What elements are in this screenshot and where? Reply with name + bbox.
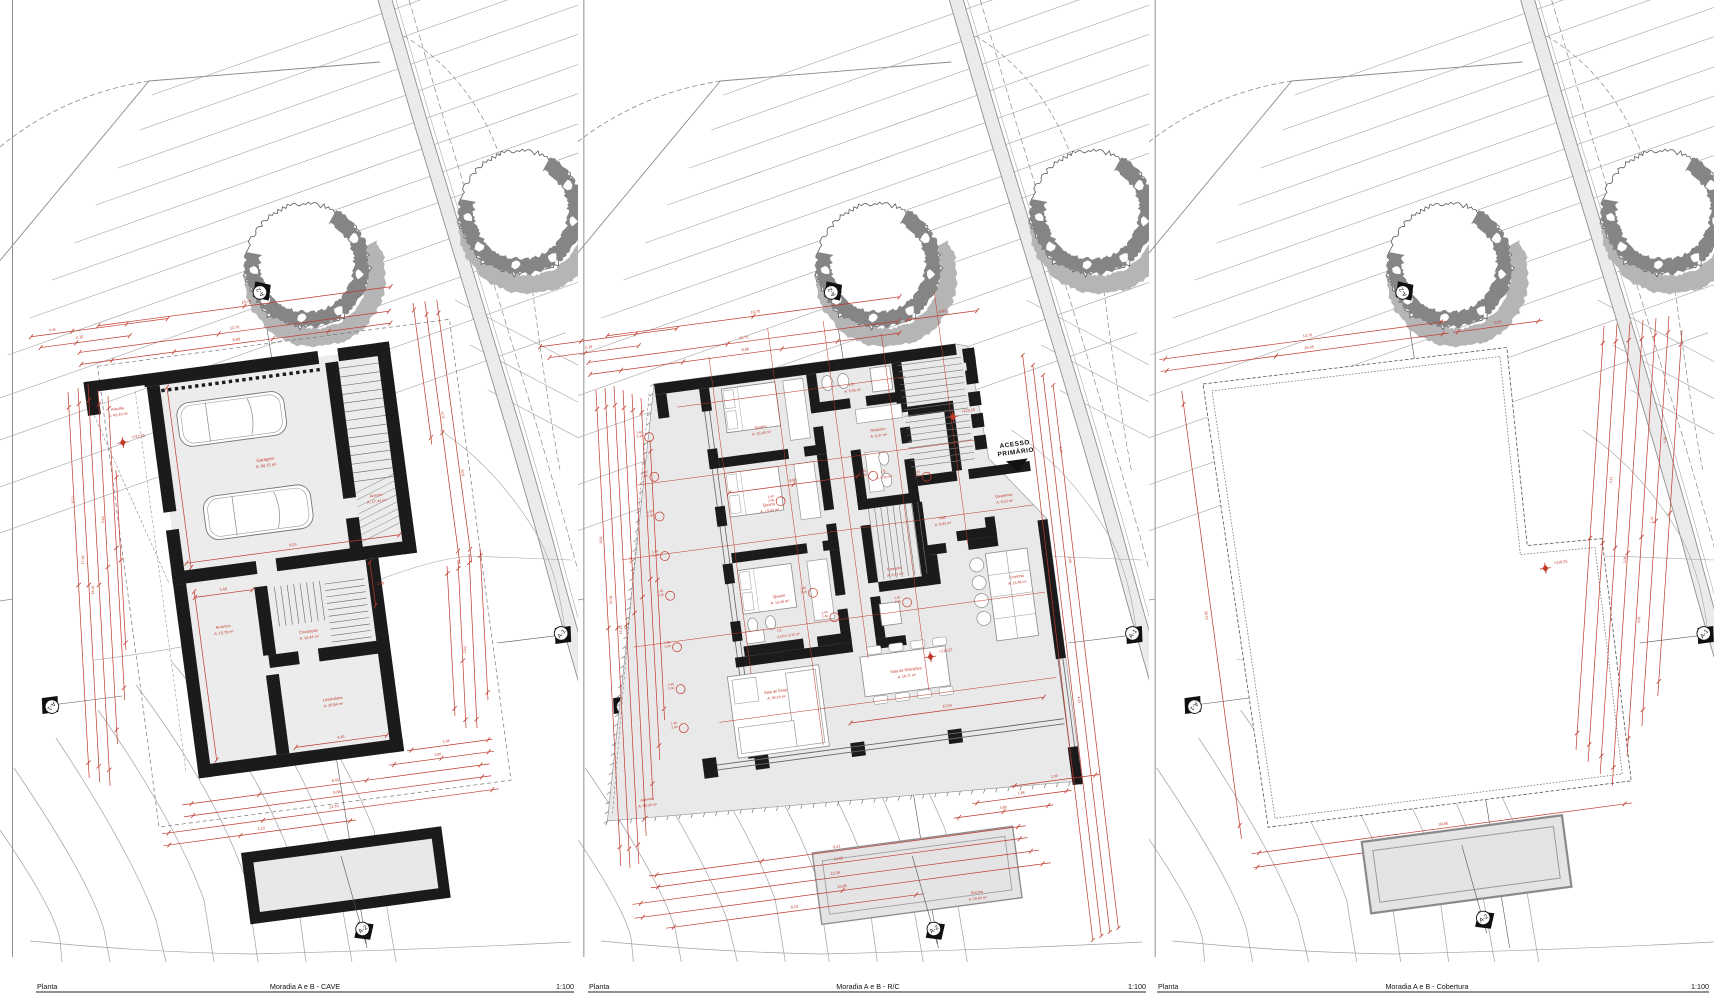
svg-text:2,40: 2,40 bbox=[860, 473, 867, 478]
svg-text:2,63: 2,63 bbox=[463, 646, 467, 653]
svg-text:2,40: 2,40 bbox=[636, 434, 643, 439]
svg-text:Moradia A e B - CAVE: Moradia A e B - CAVE bbox=[270, 982, 340, 991]
svg-text:24,05: 24,05 bbox=[609, 595, 613, 604]
svg-text:1,23: 1,23 bbox=[1650, 516, 1654, 523]
svg-text:Planta: Planta bbox=[37, 982, 57, 991]
svg-text:2,40: 2,40 bbox=[671, 725, 678, 730]
svg-text:2,40: 2,40 bbox=[647, 513, 654, 518]
svg-text:1:100: 1:100 bbox=[1691, 982, 1709, 991]
svg-text:8,72: 8,72 bbox=[71, 496, 75, 503]
svg-text:4,38: 4,38 bbox=[1663, 436, 1667, 443]
svg-text:6,96: 6,96 bbox=[629, 556, 633, 563]
svg-text:8,56: 8,56 bbox=[599, 536, 603, 543]
svg-text:I.S.: I.S. bbox=[777, 628, 783, 633]
svg-text:2,40: 2,40 bbox=[914, 474, 921, 479]
svg-text:2,40: 2,40 bbox=[664, 644, 671, 649]
svg-text:1:100: 1:100 bbox=[556, 982, 574, 991]
svg-text:16,15: 16,15 bbox=[619, 625, 623, 634]
svg-text:2,40: 2,40 bbox=[822, 614, 829, 619]
svg-text:Planta: Planta bbox=[1158, 982, 1178, 991]
svg-text:2,08: 2,08 bbox=[1623, 556, 1627, 563]
svg-text:I.S.: I.S. bbox=[849, 382, 855, 387]
svg-text:4,12: 4,12 bbox=[1609, 476, 1613, 483]
svg-text:2,40: 2,40 bbox=[668, 686, 675, 691]
svg-text:17,05: 17,05 bbox=[81, 555, 86, 564]
svg-text:Moradia A e B - Cobertura: Moradia A e B - Cobertura bbox=[1385, 982, 1468, 991]
svg-text:16,05: 16,05 bbox=[91, 585, 96, 594]
svg-text:1:100: 1:100 bbox=[1128, 982, 1146, 991]
svg-text:2,40: 2,40 bbox=[768, 498, 775, 503]
svg-text:2,40: 2,40 bbox=[658, 593, 665, 598]
svg-text:I.S.: I.S. bbox=[880, 469, 886, 474]
svg-text:2,40: 2,40 bbox=[800, 590, 807, 595]
svg-text:Moradia A e B - R/C: Moradia A e B - R/C bbox=[836, 982, 900, 991]
svg-text:2,40: 2,40 bbox=[894, 599, 901, 604]
svg-text:4,23: 4,23 bbox=[1637, 616, 1641, 623]
svg-text:3,48: 3,48 bbox=[101, 516, 105, 523]
svg-text:Planta: Planta bbox=[589, 982, 609, 991]
